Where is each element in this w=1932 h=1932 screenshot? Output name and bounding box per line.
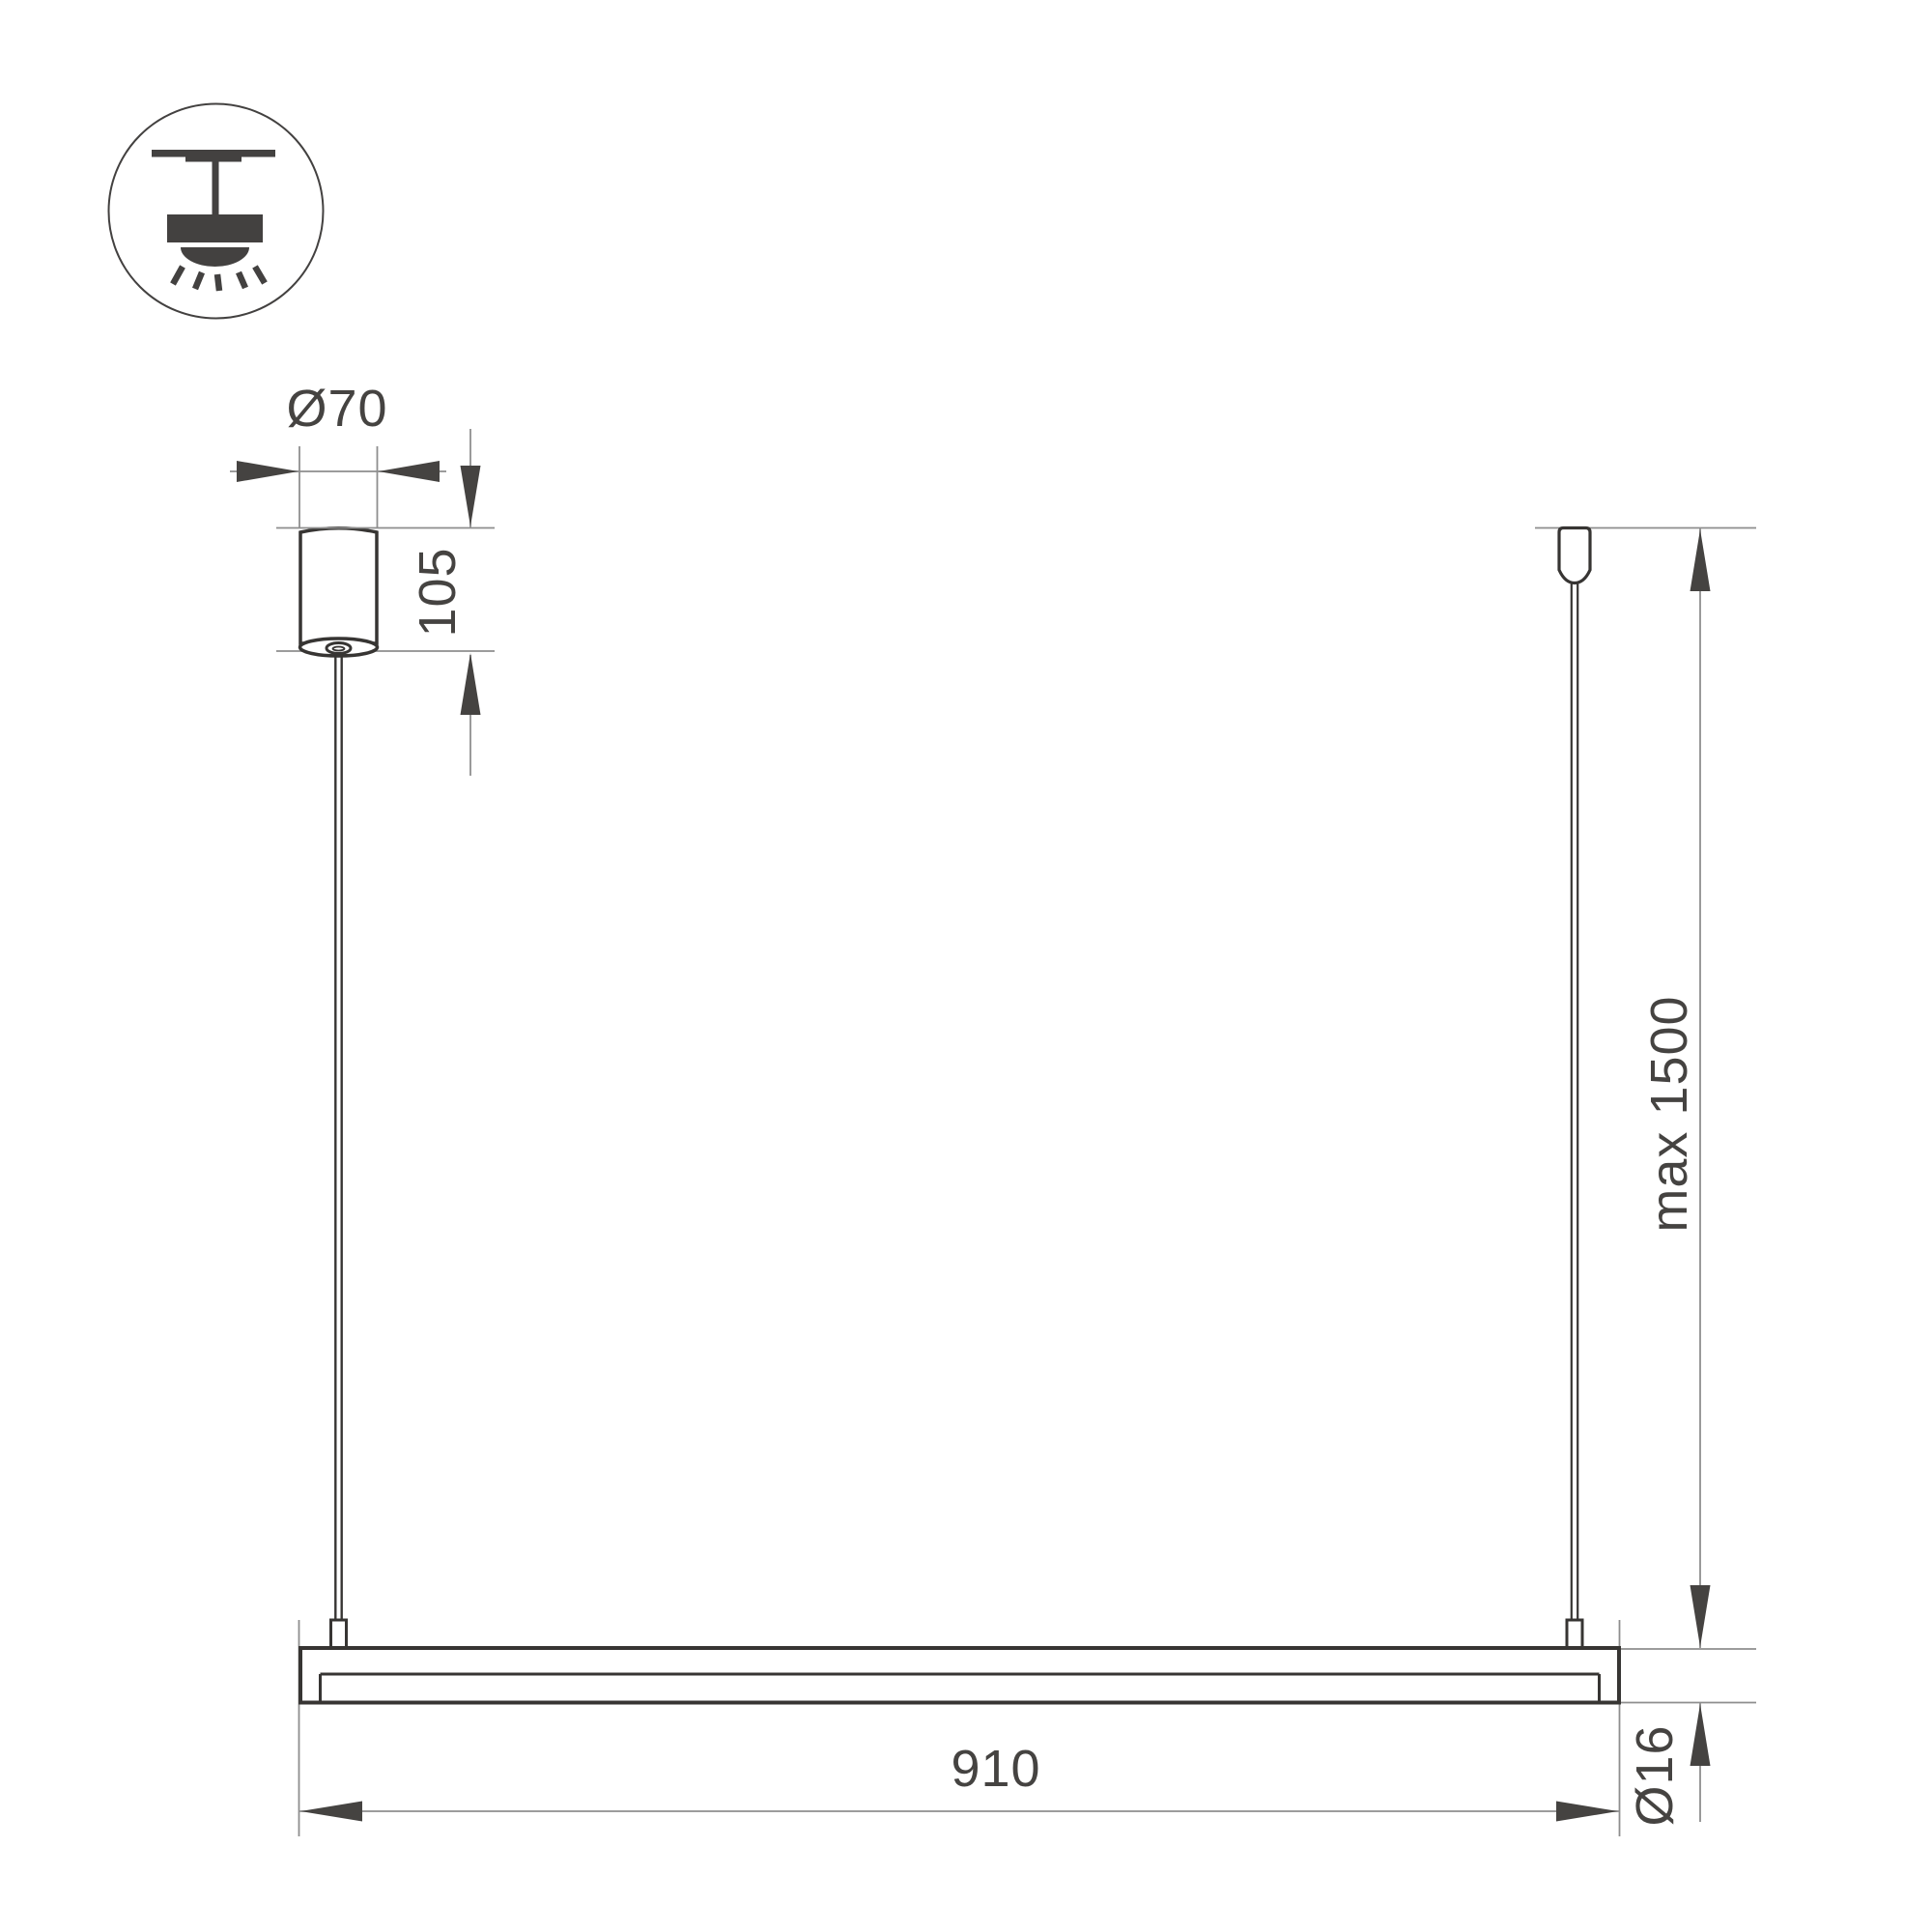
arrowhead-down-icon [1690,1585,1711,1647]
arrowhead-left-icon [379,461,440,482]
linear-fixture [300,1648,1619,1703]
icon-light-rays [173,267,265,291]
technical-drawing: Ø70 105 max 1500 Ø16 910 [0,0,1932,1932]
wire-grip-connector [331,1620,347,1649]
drawing-canvas: Ø70 105 max 1500 Ø16 910 [0,0,1932,1932]
icon-light-dome [181,247,249,267]
fixture-length-label: 910 [951,1740,1040,1798]
canopy-height-label: 105 [409,547,467,637]
arrowhead-up-icon [1690,1704,1711,1766]
arrowhead-right-icon [237,461,298,482]
tube-diameter-label: Ø16 [1626,1724,1684,1826]
arrowhead-up-icon [461,653,481,715]
canopy-diameter-label: Ø70 [286,380,387,438]
icon-lamp-shade [167,214,263,242]
canopy-body [300,528,377,643]
wire-grip-connector [1567,1620,1582,1649]
dimension-tube-diameter: Ø16 [1621,1703,1756,1827]
right-suspension [1559,528,1590,1649]
arrowhead-up-icon [1690,529,1711,591]
dimension-canopy-diameter: Ø70 [230,380,446,528]
max-suspension-label: max 1500 [1640,995,1698,1232]
canopy-detail [300,528,378,1649]
mount-type-icon [109,104,324,319]
dimension-max-suspension: max 1500 [1535,528,1756,1650]
arrowhead-down-icon [461,466,481,526]
arrowhead-right-icon [1556,1802,1618,1822]
arrowhead-left-icon [300,1802,362,1822]
right-canopy-body [1559,528,1590,583]
icon-stem [213,159,219,215]
cable-gland [327,643,351,654]
